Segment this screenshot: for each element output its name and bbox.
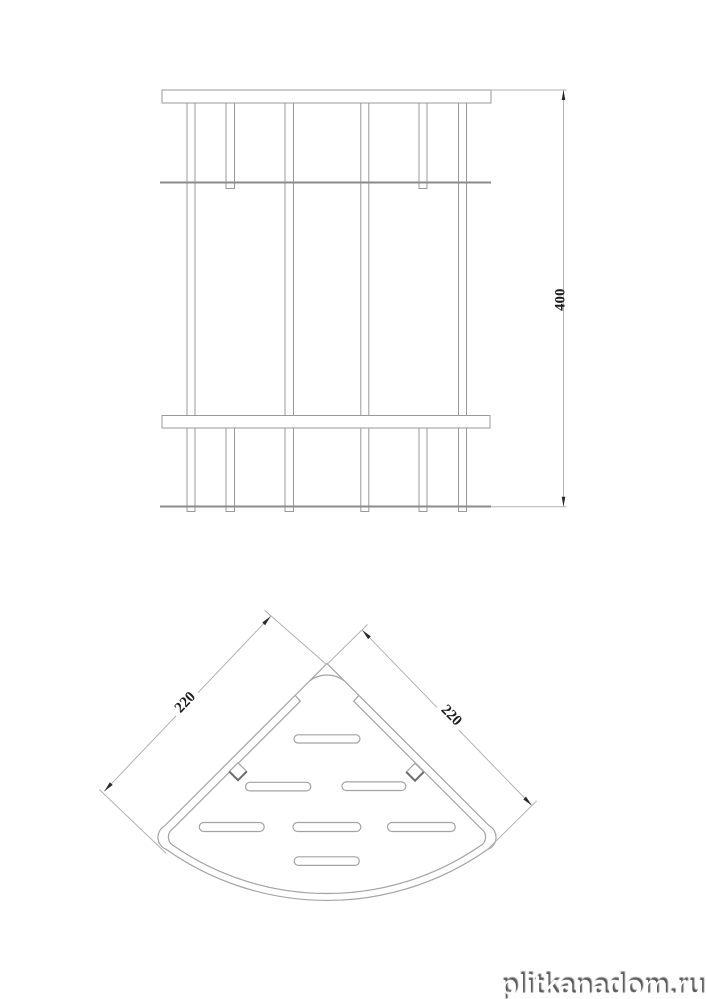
- svg-text:400: 400: [553, 289, 569, 312]
- svg-text:plitkanadom.ru: plitkanadom.ru: [500, 970, 704, 999]
